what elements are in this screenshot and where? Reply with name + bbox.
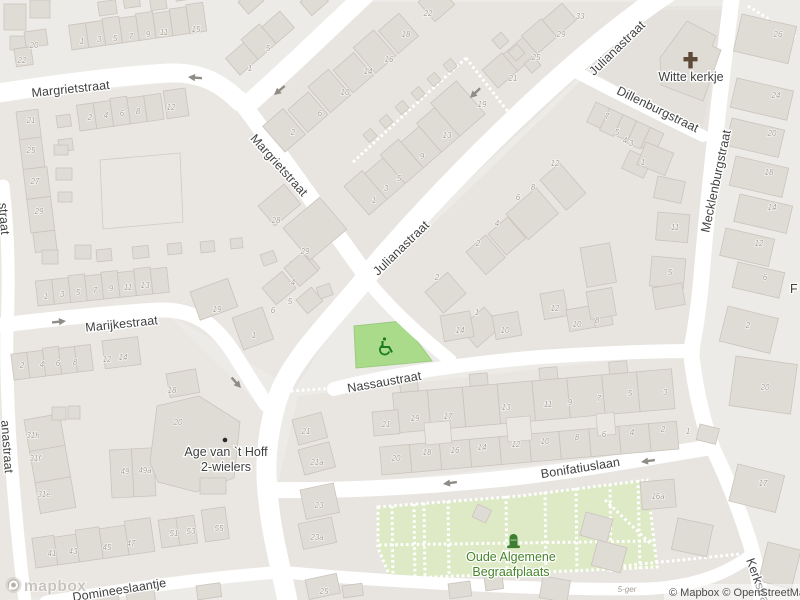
svg-text:1: 1 <box>248 64 252 73</box>
svg-text:12: 12 <box>551 304 560 313</box>
svg-text:17: 17 <box>759 479 768 488</box>
svg-text:9: 9 <box>146 30 151 39</box>
svg-text:14: 14 <box>478 443 487 452</box>
svg-text:12: 12 <box>167 103 176 112</box>
svg-text:14: 14 <box>364 67 373 76</box>
svg-text:11: 11 <box>544 400 552 409</box>
svg-text:21: 21 <box>508 74 518 83</box>
svg-text:19: 19 <box>478 100 487 109</box>
svg-text:31h: 31h <box>26 431 40 440</box>
svg-text:18: 18 <box>168 386 177 395</box>
svg-text:20: 20 <box>173 418 183 427</box>
svg-text:6: 6 <box>318 109 323 118</box>
svg-text:5: 5 <box>113 34 118 43</box>
svg-text:53: 53 <box>187 527 196 536</box>
svg-text:Begraafplaats: Begraafplaats <box>472 565 549 579</box>
svg-text:17: 17 <box>444 412 453 421</box>
svg-text:1: 1 <box>686 427 690 436</box>
svg-text:21: 21 <box>26 116 36 125</box>
svg-text:19: 19 <box>213 305 222 314</box>
svg-text:10: 10 <box>573 320 582 329</box>
svg-text:© Mapbox © OpenStreetMap: © Mapbox © OpenStreetMap <box>669 587 800 599</box>
svg-text:27: 27 <box>30 177 40 186</box>
svg-text:25: 25 <box>26 146 36 155</box>
svg-text:29: 29 <box>556 30 566 39</box>
svg-text:41: 41 <box>48 549 57 558</box>
svg-text:5: 5 <box>668 268 673 277</box>
svg-text:14: 14 <box>768 203 777 212</box>
svg-text:2: 2 <box>290 128 296 137</box>
svg-text:9: 9 <box>109 284 114 293</box>
svg-text:16a: 16a <box>651 492 665 501</box>
svg-text:1: 1 <box>44 292 48 301</box>
svg-text:55: 55 <box>215 524 224 533</box>
svg-text:straat: straat <box>0 202 12 235</box>
svg-text:18: 18 <box>765 168 774 177</box>
svg-text:2: 2 <box>475 239 481 248</box>
svg-text:F: F <box>790 282 798 296</box>
svg-text:5: 5 <box>288 297 293 306</box>
svg-text:6: 6 <box>120 109 125 118</box>
svg-text:6: 6 <box>56 359 61 368</box>
svg-text:1: 1 <box>372 196 376 205</box>
svg-text:14: 14 <box>456 326 465 335</box>
svg-text:29: 29 <box>34 207 44 216</box>
svg-text:3: 3 <box>384 184 389 193</box>
svg-text:8: 8 <box>73 358 78 367</box>
svg-text:16: 16 <box>451 446 460 455</box>
svg-text:6: 6 <box>602 430 607 439</box>
svg-text:2: 2 <box>87 113 93 122</box>
svg-text:12: 12 <box>512 440 521 449</box>
svg-text:16: 16 <box>385 55 394 64</box>
svg-text:12: 12 <box>755 239 764 248</box>
svg-text:3: 3 <box>663 388 668 397</box>
svg-text:5: 5 <box>615 128 620 137</box>
svg-text:12: 12 <box>551 159 560 168</box>
svg-text:20: 20 <box>767 129 777 138</box>
svg-text:2: 2 <box>660 425 666 434</box>
svg-text:10: 10 <box>341 88 350 97</box>
svg-text:6: 6 <box>763 273 768 282</box>
svg-text:10: 10 <box>501 326 510 335</box>
svg-text:14: 14 <box>119 353 128 362</box>
svg-text:5: 5 <box>266 44 271 53</box>
svg-text:3: 3 <box>60 290 65 299</box>
svg-text:5: 5 <box>397 174 402 183</box>
svg-text:13: 13 <box>443 131 452 140</box>
svg-text:2: 2 <box>434 273 440 282</box>
svg-text:15: 15 <box>192 25 201 34</box>
svg-text:8: 8 <box>136 107 141 116</box>
svg-text:26: 26 <box>773 30 783 39</box>
svg-text:31e: 31e <box>37 490 51 499</box>
svg-text:8: 8 <box>575 433 580 442</box>
svg-text:11: 11 <box>671 223 679 232</box>
svg-text:13: 13 <box>502 403 511 412</box>
svg-text:18: 18 <box>402 30 411 39</box>
svg-text:43: 43 <box>69 547 78 556</box>
svg-text:24: 24 <box>771 91 781 100</box>
svg-text:Witte kerkje: Witte kerkje <box>658 70 723 84</box>
svg-text:11: 11 <box>160 28 168 37</box>
svg-text:4: 4 <box>623 136 628 145</box>
svg-text:6: 6 <box>516 193 521 202</box>
svg-text:1: 1 <box>252 331 256 340</box>
svg-text:2: 2 <box>19 361 25 370</box>
svg-text:3: 3 <box>629 139 634 148</box>
svg-text:21: 21 <box>301 427 311 436</box>
svg-text:51: 51 <box>170 529 179 538</box>
svg-text:47: 47 <box>127 539 136 548</box>
svg-text:49: 49 <box>121 467 130 476</box>
svg-text:4: 4 <box>630 428 635 437</box>
svg-text:25: 25 <box>319 587 329 596</box>
svg-text:1: 1 <box>80 37 84 46</box>
svg-text:49a: 49a <box>138 466 152 475</box>
svg-text:4: 4 <box>291 278 296 287</box>
svg-text:5-ger: 5-ger <box>618 585 637 594</box>
svg-text:31f: 31f <box>29 454 41 463</box>
svg-text:10: 10 <box>541 437 550 446</box>
svg-text:45: 45 <box>103 543 112 552</box>
svg-text:20: 20 <box>29 41 39 50</box>
svg-text:8: 8 <box>531 183 536 192</box>
svg-text:3: 3 <box>97 35 102 44</box>
svg-text:anastraat: anastraat <box>0 420 16 474</box>
svg-text:29: 29 <box>300 247 310 256</box>
svg-text:7: 7 <box>605 112 610 121</box>
svg-text:1: 1 <box>641 158 645 167</box>
svg-text:23: 23 <box>314 501 324 510</box>
svg-text:25: 25 <box>531 53 541 62</box>
svg-text:21a: 21a <box>309 458 324 467</box>
svg-text:1: 1 <box>475 308 479 317</box>
svg-text:20: 20 <box>760 383 770 392</box>
svg-text:12: 12 <box>103 355 112 364</box>
svg-text:28: 28 <box>271 216 281 225</box>
svg-text:7: 7 <box>129 32 134 41</box>
svg-text:2: 2 <box>745 321 751 330</box>
svg-text:mapbox: mapbox <box>24 578 86 595</box>
svg-text:5: 5 <box>628 389 633 398</box>
svg-text:33: 33 <box>576 12 585 21</box>
svg-text:20: 20 <box>391 454 401 463</box>
svg-text:Age van `t Hoff: Age van `t Hoff <box>184 445 268 459</box>
svg-text:Oude Algemene: Oude Algemene <box>466 550 556 564</box>
svg-text:8: 8 <box>595 316 600 325</box>
svg-text:22: 22 <box>17 56 27 65</box>
svg-text:11: 11 <box>124 283 132 292</box>
svg-text:19: 19 <box>411 414 420 423</box>
svg-text:9: 9 <box>420 152 425 161</box>
svg-text:23a: 23a <box>309 533 324 542</box>
svg-text:5: 5 <box>76 288 81 297</box>
svg-text:21: 21 <box>381 420 391 429</box>
svg-text:6: 6 <box>271 306 276 315</box>
svg-text:13: 13 <box>141 281 150 290</box>
svg-text:2-wielers: 2-wielers <box>201 460 251 474</box>
svg-text:4: 4 <box>40 360 45 369</box>
svg-text:9: 9 <box>568 398 573 407</box>
svg-text:7: 7 <box>93 286 98 295</box>
svg-text:22: 22 <box>423 9 433 18</box>
svg-text:7: 7 <box>597 394 602 403</box>
svg-text:4: 4 <box>495 219 500 228</box>
svg-text:4: 4 <box>104 111 109 120</box>
svg-text:18: 18 <box>423 448 432 457</box>
